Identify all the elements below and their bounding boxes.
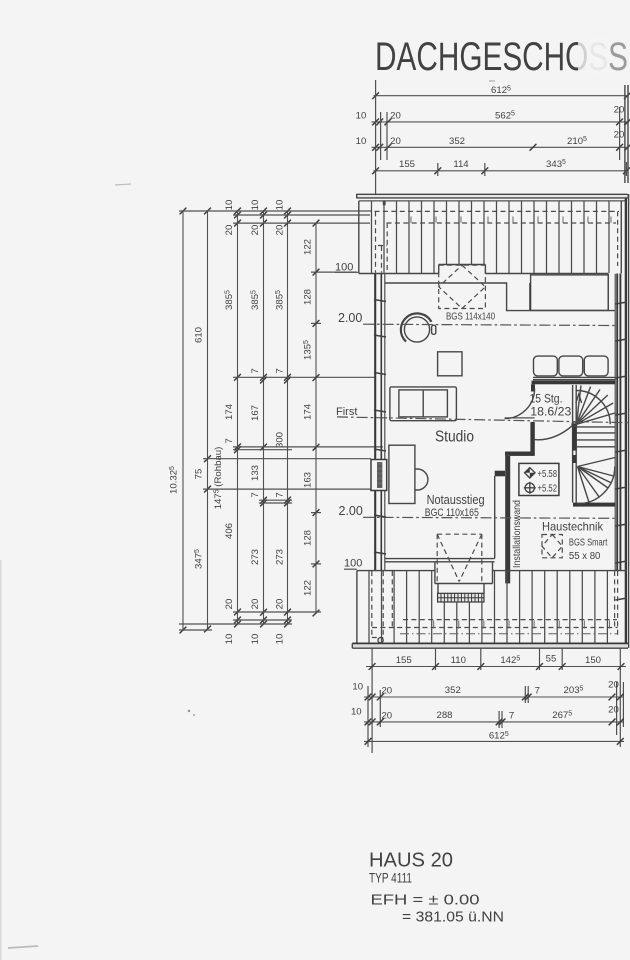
svg-text:TYP 4111: TYP 4111 <box>369 871 412 886</box>
svg-text:55: 55 <box>546 654 557 665</box>
svg-text:20: 20 <box>224 599 235 610</box>
svg-text:7: 7 <box>250 368 261 373</box>
svg-text:Haustechnik: Haustechnik <box>542 520 604 534</box>
svg-text:Installationswand: Installationswand <box>511 500 523 568</box>
svg-text:150: 150 <box>585 655 601 666</box>
svg-text:20: 20 <box>275 225 286 236</box>
svg-text:10: 10 <box>351 707 362 718</box>
svg-text:10: 10 <box>275 634 286 645</box>
svg-text:Notausstieg: Notausstieg <box>427 493 485 507</box>
svg-text:110: 110 <box>451 655 466 666</box>
svg-text:10: 10 <box>352 682 363 693</box>
svg-text:18.6/23: 18.6/23 <box>530 407 571 419</box>
svg-text:= 381.05 ü.NN: = 381.05 ü.NN <box>402 910 504 926</box>
svg-text:First: First <box>336 406 357 418</box>
svg-text:20: 20 <box>390 136 401 147</box>
svg-text:273: 273 <box>250 549 261 565</box>
svg-text:2.00: 2.00 <box>339 504 363 518</box>
svg-text:114: 114 <box>453 159 469 170</box>
svg-text:406: 406 <box>224 523 235 539</box>
svg-text:+5.58: +5.58 <box>538 469 558 480</box>
svg-text:10: 10 <box>356 136 367 147</box>
svg-text:+5.52: +5.52 <box>538 484 558 495</box>
svg-text:HAUS 20: HAUS 20 <box>369 850 453 872</box>
svg-text:288: 288 <box>436 710 452 721</box>
svg-text:10: 10 <box>275 200 286 211</box>
svg-text:20: 20 <box>390 111 401 122</box>
svg-text:273: 273 <box>275 549 286 565</box>
svg-text:Studio: Studio <box>435 429 474 446</box>
svg-text:75: 75 <box>194 469 205 480</box>
svg-text:300: 300 <box>275 432 286 448</box>
svg-text:10: 10 <box>356 110 367 121</box>
svg-text:174: 174 <box>224 403 235 420</box>
svg-text:128: 128 <box>303 289 314 305</box>
svg-text:7: 7 <box>509 710 514 721</box>
svg-text:7: 7 <box>275 368 286 373</box>
svg-text:20: 20 <box>381 710 392 721</box>
svg-text:20: 20 <box>608 680 619 691</box>
svg-text:122: 122 <box>303 580 314 596</box>
svg-text:BGS 114x140: BGS 114x140 <box>446 311 495 323</box>
svg-text:20: 20 <box>608 705 619 716</box>
svg-text:20: 20 <box>381 686 392 697</box>
svg-text:10: 10 <box>224 634 235 645</box>
svg-text:20: 20 <box>250 599 261 610</box>
svg-text:10: 10 <box>224 200 235 211</box>
svg-text:BGS Smart: BGS Smart <box>569 538 608 549</box>
svg-text:20: 20 <box>224 225 235 236</box>
svg-text:155: 155 <box>396 655 412 666</box>
svg-text:122: 122 <box>303 239 314 255</box>
svg-text:167: 167 <box>250 405 261 421</box>
svg-text:352: 352 <box>449 136 465 147</box>
svg-text:20: 20 <box>250 225 261 236</box>
svg-text:155: 155 <box>399 159 415 170</box>
svg-text:2.00: 2.00 <box>338 311 362 325</box>
svg-text:55 x 80: 55 x 80 <box>569 551 601 562</box>
svg-text:7: 7 <box>250 492 261 497</box>
svg-text:7: 7 <box>535 686 540 697</box>
svg-text:163: 163 <box>303 472 314 488</box>
svg-text:128: 128 <box>303 530 314 546</box>
svg-text:7: 7 <box>224 438 235 443</box>
svg-text:EFH = ± 0.00: EFH = ± 0.00 <box>371 893 480 909</box>
svg-text:352: 352 <box>445 685 461 696</box>
svg-text:133: 133 <box>250 465 261 481</box>
svg-text:10: 10 <box>250 634 261 645</box>
svg-text:10: 10 <box>250 200 261 211</box>
svg-text:20: 20 <box>275 599 286 610</box>
svg-text:7: 7 <box>275 492 286 497</box>
svg-text:10.325: 10.325 <box>169 466 180 494</box>
svg-text:610: 610 <box>194 327 205 343</box>
svg-text:174: 174 <box>303 403 314 420</box>
svg-text:1475 (Rohbau): 1475 (Rohbau) <box>213 447 224 510</box>
svg-text:100: 100 <box>344 558 362 570</box>
